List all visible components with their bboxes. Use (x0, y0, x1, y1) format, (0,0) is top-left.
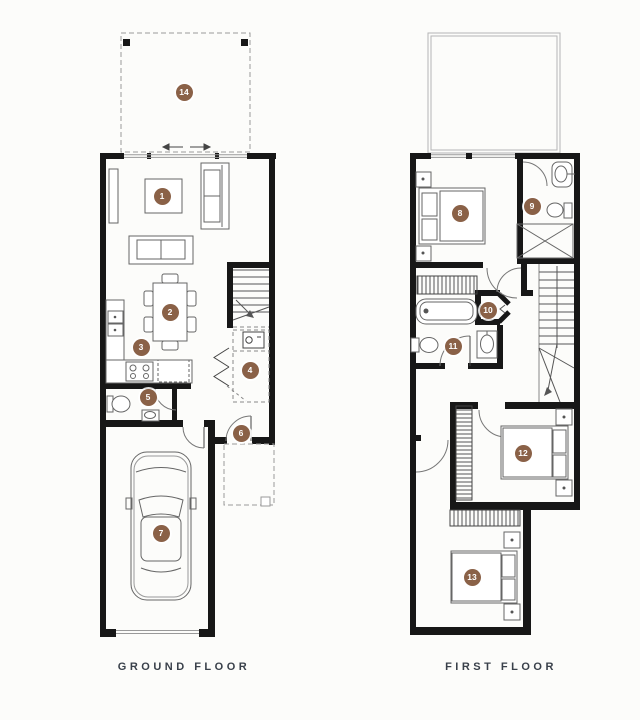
room-marker-7: 7 (153, 525, 170, 542)
stairs-first (539, 264, 574, 402)
shower (517, 224, 573, 258)
ground-floor-label: GROUND FLOOR (118, 661, 250, 673)
pillow (422, 193, 437, 216)
floor-plan-drawing (0, 0, 640, 720)
patio-post (123, 39, 130, 46)
first-windows (431, 155, 515, 158)
roof-outline (428, 33, 560, 153)
room-marker-10: 10 (480, 302, 497, 319)
chair (162, 341, 178, 350)
room-marker-2: 2 (162, 304, 179, 321)
entry (183, 416, 274, 506)
toilet-tank (411, 338, 419, 352)
patio-post (241, 39, 248, 46)
wardrobe (417, 276, 477, 294)
room-marker-5: 5 (140, 389, 157, 406)
room-marker-3: 3 (133, 339, 150, 356)
vestibule-notch (500, 305, 505, 313)
sofa-bottom (129, 236, 193, 264)
hall-door-arc (416, 440, 448, 472)
room-marker-11: 11 (445, 338, 462, 355)
kitchen-sink (108, 311, 123, 336)
toilet-bowl (420, 338, 438, 353)
pillow (553, 430, 566, 453)
chair (162, 274, 178, 283)
pillow (502, 555, 515, 577)
room-marker-6: 6 (233, 425, 250, 442)
wardrobe (450, 510, 520, 526)
porch-outline (224, 444, 274, 505)
stairs-ground (233, 270, 269, 327)
sofa-right (201, 163, 229, 229)
toilet-bowl (547, 203, 563, 217)
pillow (422, 219, 437, 240)
floorplan-page: 1 2 3 4 5 6 7 8 9 10 11 12 13 14 GROUND … (0, 0, 640, 720)
door-arc (523, 162, 547, 186)
ground-floor-plan (100, 33, 276, 637)
living-room (109, 163, 229, 264)
sliding-door-arrows (163, 144, 210, 150)
chair (187, 317, 196, 332)
room-marker-4: 4 (242, 362, 259, 379)
room-marker-14: 14 (176, 84, 193, 101)
toilet-bowl (112, 396, 130, 412)
first-floor-label: FIRST FLOOR (445, 661, 557, 673)
bifold-door (214, 348, 229, 367)
chair (187, 291, 196, 306)
room-marker-12: 12 (515, 445, 532, 462)
garage-door-arc (183, 427, 204, 448)
room-marker-13: 13 (464, 569, 481, 586)
bifold-door (214, 367, 229, 386)
pillow (502, 579, 515, 600)
console-table (109, 169, 118, 223)
first-floor-plan (410, 33, 580, 635)
pillow (553, 455, 566, 477)
bedroom-13 (450, 510, 520, 620)
room-marker-8: 8 (452, 205, 469, 222)
toilet-tank (564, 203, 572, 218)
chair (144, 317, 153, 332)
washing-machine (243, 332, 264, 348)
room-marker-9: 9 (524, 198, 541, 215)
wardrobe (456, 406, 472, 500)
vestibule-door-arc (497, 268, 521, 292)
chair (144, 291, 153, 306)
storage-laundry (214, 330, 269, 402)
room-marker-1: 1 (154, 188, 171, 205)
cooktop (126, 362, 153, 381)
bedroom-8 (416, 172, 517, 298)
